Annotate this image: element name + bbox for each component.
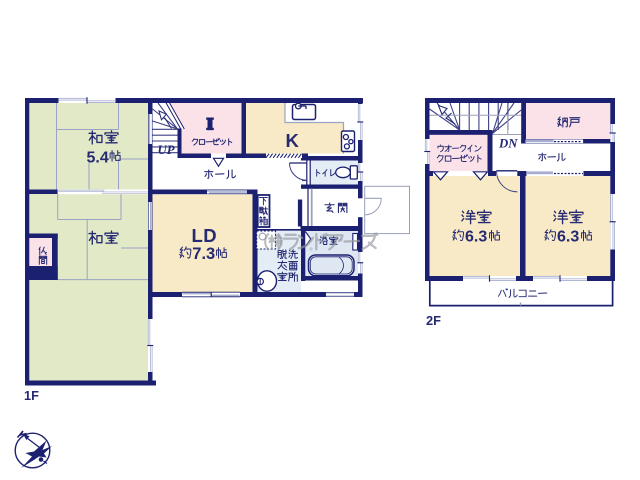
svg-text:1F: 1F [24,388,39,403]
svg-text:LD: LD [192,225,218,246]
svg-text:6.3: 6.3 [465,229,487,246]
svg-text:7.3: 7.3 [192,245,215,263]
svg-text:UP: UP [158,143,175,157]
svg-text:DN: DN [498,137,518,151]
svg-text:6.3: 6.3 [557,229,579,246]
svg-text:2F: 2F [426,313,441,328]
svg-text:K: K [286,130,300,151]
svg-text:5.4: 5.4 [87,150,109,167]
